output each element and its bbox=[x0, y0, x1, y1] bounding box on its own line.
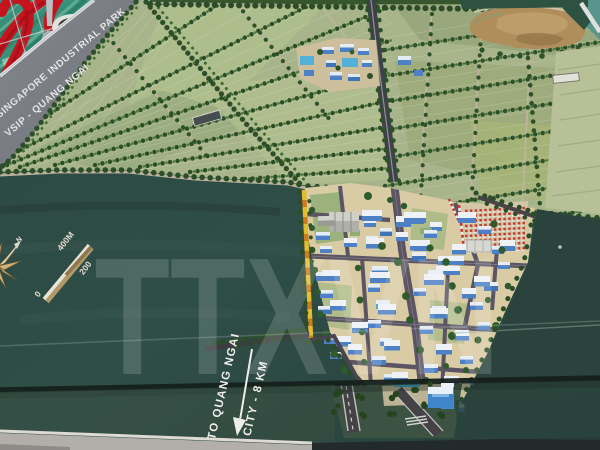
svg-text:TTXVN: TTXVN bbox=[94, 224, 499, 410]
